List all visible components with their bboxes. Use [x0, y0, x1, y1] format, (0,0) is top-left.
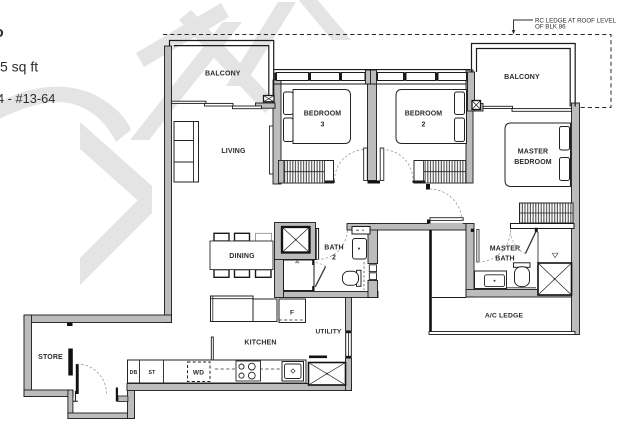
svg-text:BEDROOM: BEDROOM	[405, 110, 443, 117]
svg-text:MASTER: MASTER	[490, 246, 520, 253]
svg-text:BALCONY: BALCONY	[205, 71, 241, 78]
svg-text:UTILITY: UTILITY	[316, 328, 342, 335]
svg-text:F: F	[290, 310, 294, 317]
svg-text:BEDROOM: BEDROOM	[304, 110, 342, 117]
svg-text:KITCHEN: KITCHEN	[244, 340, 276, 347]
svg-text:LIVING: LIVING	[221, 148, 246, 155]
svg-text:OF BLK 86: OF BLK 86	[535, 24, 566, 31]
svg-text:DINING: DINING	[229, 253, 255, 260]
svg-text:2: 2	[421, 122, 425, 129]
svg-text:STORE: STORE	[38, 354, 63, 361]
svg-text:3: 3	[320, 122, 324, 129]
svg-text:A/C LEDGE: A/C LEDGE	[485, 313, 524, 320]
svg-text:DB: DB	[130, 370, 138, 376]
svg-text:BALCONY: BALCONY	[504, 74, 540, 81]
svg-text:BEDROOM: BEDROOM	[514, 159, 552, 166]
svg-text:o: o	[0, 24, 4, 41]
svg-text:ST: ST	[149, 370, 157, 376]
svg-text:5 sq ft: 5 sq ft	[0, 59, 38, 75]
svg-text:WD: WD	[193, 370, 204, 377]
svg-text:BATH: BATH	[495, 256, 515, 263]
svg-text:4 - #13-64: 4 - #13-64	[0, 91, 55, 106]
svg-text:BATH: BATH	[324, 245, 344, 252]
svg-text:2: 2	[332, 255, 336, 262]
svg-text:MASTER: MASTER	[518, 148, 548, 155]
